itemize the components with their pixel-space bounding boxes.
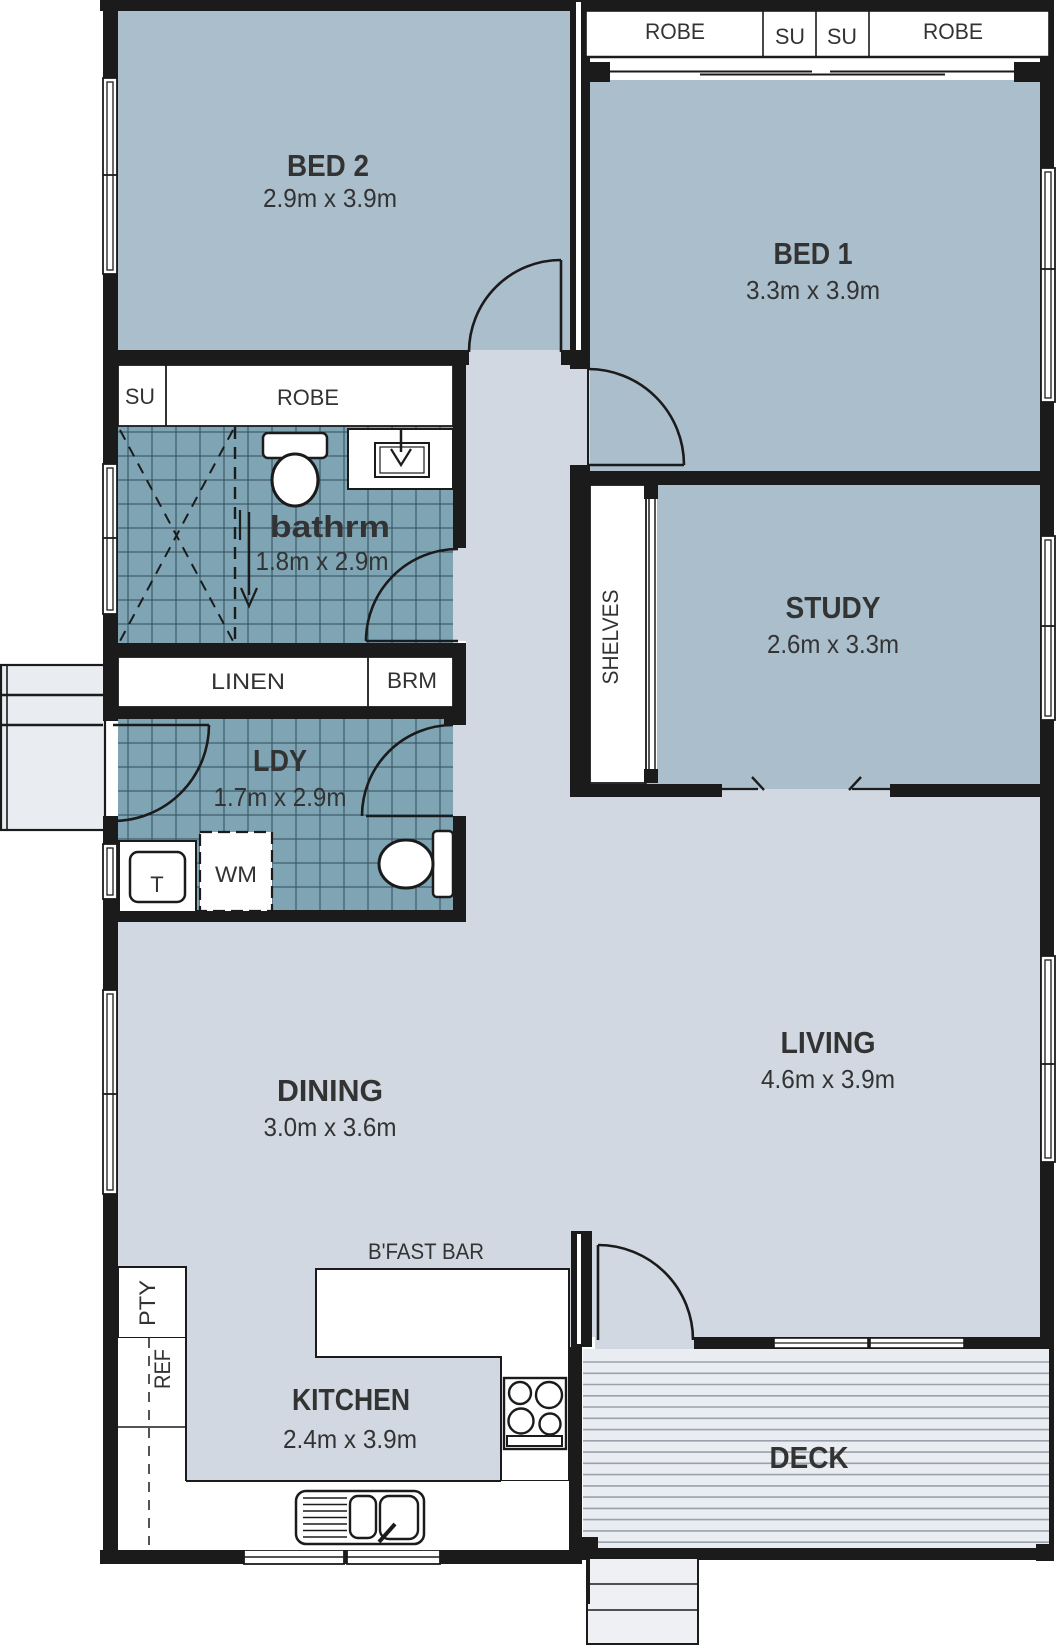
- svg-text:SU: SU: [125, 384, 155, 409]
- svg-text:3.3m x 3.9m: 3.3m x 3.9m: [746, 275, 880, 305]
- svg-text:LDY: LDY: [253, 743, 307, 778]
- svg-text:KITCHEN: KITCHEN: [292, 1382, 410, 1417]
- svg-text:SHELVES: SHELVES: [598, 590, 623, 685]
- svg-text:T: T: [150, 872, 163, 897]
- svg-text:DINING: DINING: [277, 1073, 383, 1108]
- svg-text:STUDY: STUDY: [786, 590, 881, 625]
- svg-text:PTY: PTY: [135, 1280, 160, 1326]
- svg-text:ROBE: ROBE: [645, 19, 705, 44]
- svg-text:2.9m x 3.9m: 2.9m x 3.9m: [263, 183, 397, 213]
- svg-text:BED 2: BED 2: [287, 148, 369, 183]
- svg-text:BED 1: BED 1: [774, 236, 853, 271]
- svg-text:SU: SU: [827, 24, 857, 49]
- svg-text:SU: SU: [775, 24, 805, 49]
- svg-text:1.8m x 2.9m: 1.8m x 2.9m: [256, 546, 389, 576]
- svg-text:ROBE: ROBE: [923, 19, 983, 44]
- svg-text:LINEN: LINEN: [211, 669, 285, 694]
- svg-text:4.6m x 3.9m: 4.6m x 3.9m: [761, 1064, 895, 1094]
- svg-text:3.0m x 3.6m: 3.0m x 3.6m: [264, 1112, 397, 1142]
- svg-text:REF: REF: [150, 1349, 175, 1389]
- svg-text:1.7m x 2.9m: 1.7m x 2.9m: [214, 782, 347, 812]
- svg-text:bathrm: bathrm: [270, 509, 390, 544]
- svg-text:WM: WM: [215, 862, 257, 887]
- svg-text:DECK: DECK: [770, 1440, 850, 1475]
- svg-text:LIVING: LIVING: [781, 1025, 876, 1060]
- svg-text:ROBE: ROBE: [277, 385, 339, 410]
- svg-text:B'FAST BAR: B'FAST BAR: [368, 1239, 484, 1264]
- svg-text:2.6m x 3.3m: 2.6m x 3.3m: [767, 629, 899, 659]
- svg-text:2.4m x 3.9m: 2.4m x 3.9m: [283, 1424, 417, 1454]
- svg-text:BRM: BRM: [387, 668, 437, 693]
